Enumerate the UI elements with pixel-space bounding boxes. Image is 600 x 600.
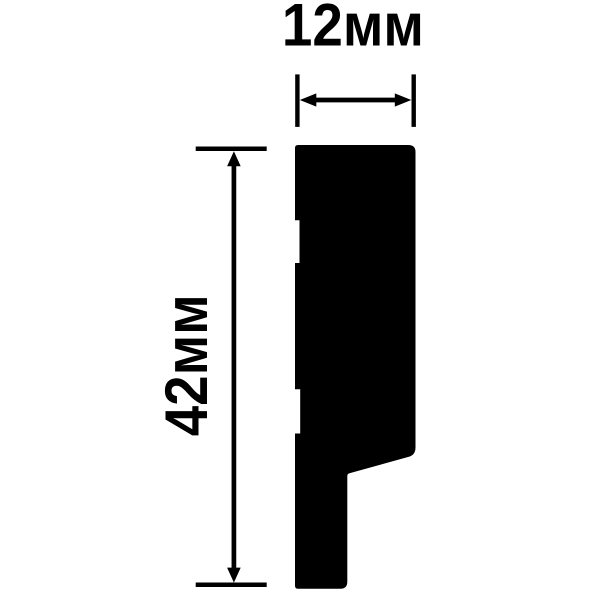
svg-text:42мм: 42мм bbox=[153, 294, 220, 436]
svg-text:12мм: 12мм bbox=[282, 0, 424, 58]
